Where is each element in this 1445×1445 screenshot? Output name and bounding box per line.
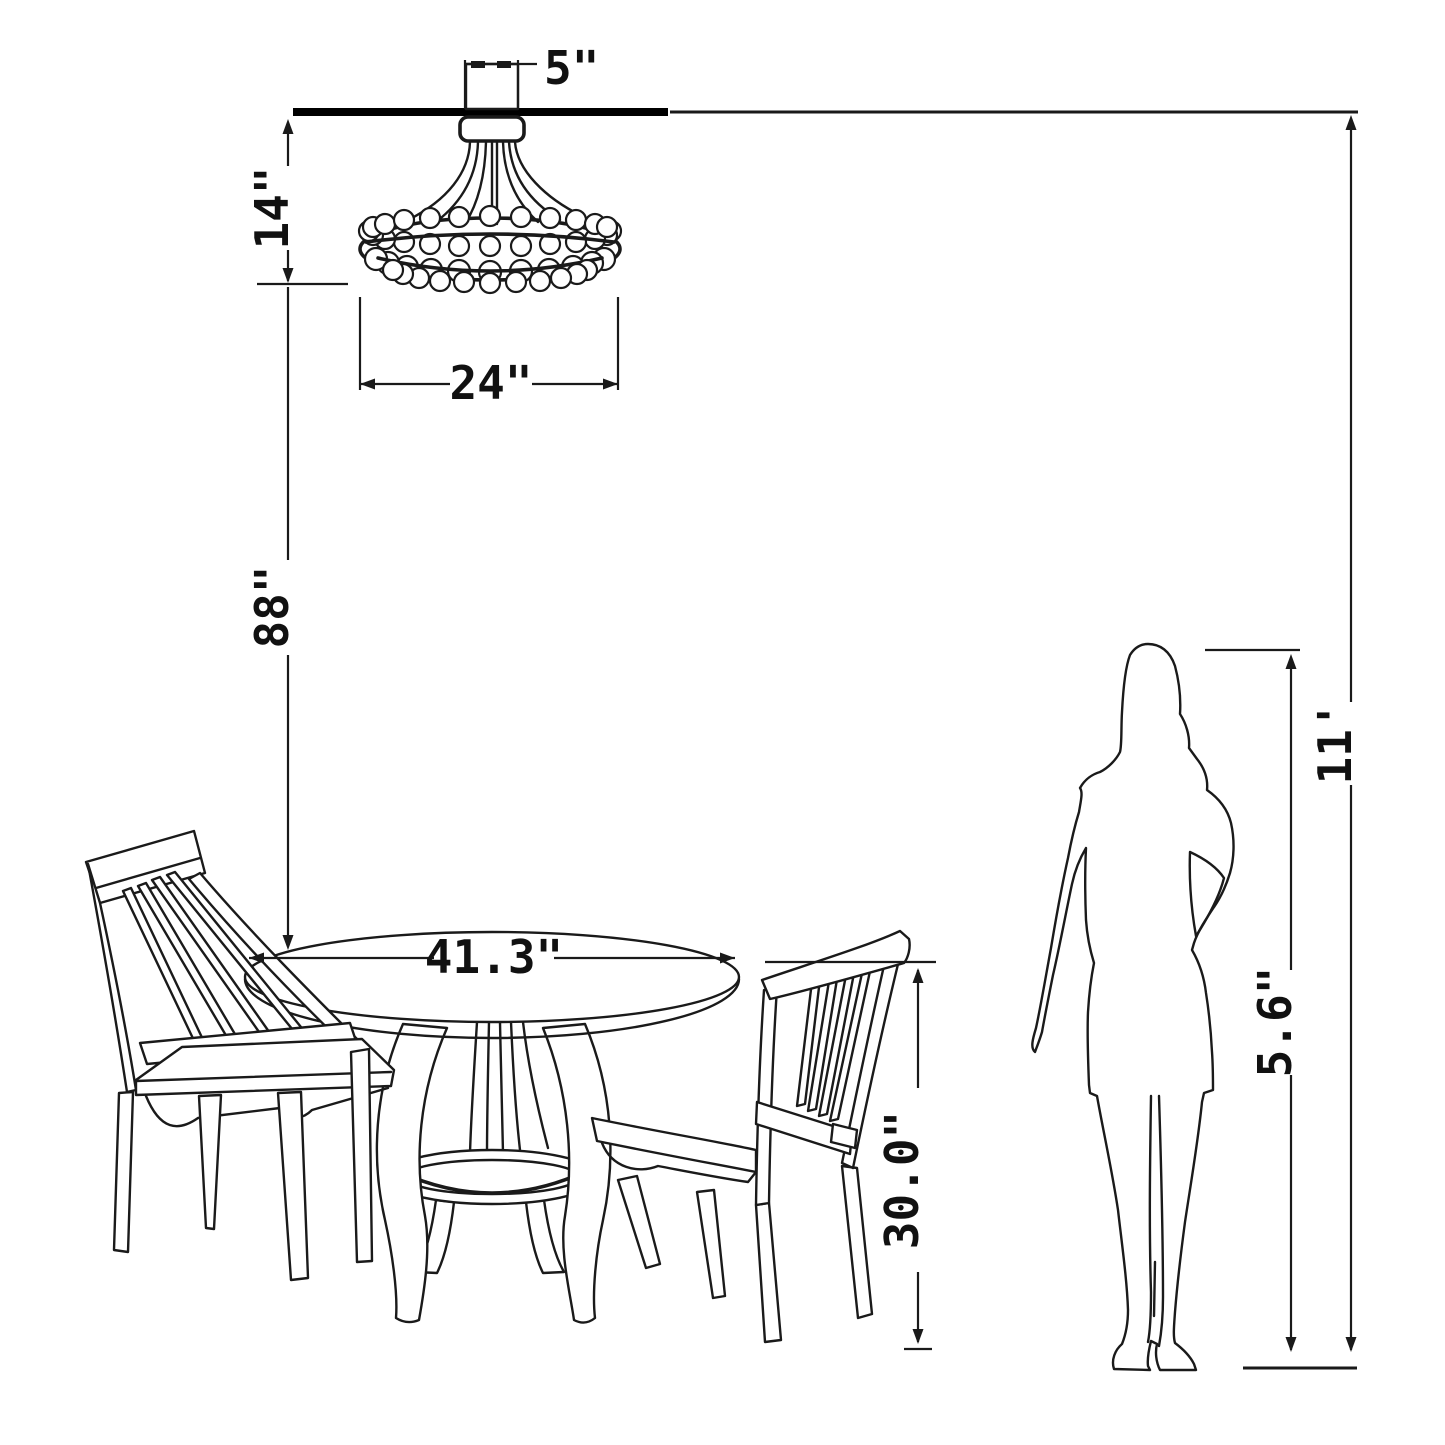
crystal-beads-top-row — [359, 206, 621, 256]
chandelier — [359, 64, 621, 293]
fixture-height-label: 14" — [245, 166, 299, 249]
table-height-label: 30.0" — [875, 1111, 929, 1249]
dim-fixture-diameter: 24" — [360, 297, 618, 410]
chair-left-back-left-leg — [114, 1092, 133, 1252]
person-outline — [1032, 644, 1233, 1370]
bead-ring — [359, 206, 621, 293]
canopy — [460, 117, 524, 141]
pedestal-stem — [470, 1022, 548, 1155]
dim-fixture-height: 14" — [245, 119, 348, 284]
table-back-right-leg — [526, 1200, 564, 1273]
diagram-canvas: 5" 14" 24" 88" 41.3" — [0, 0, 1445, 1445]
dining-table — [245, 932, 739, 1323]
chair-right-front-right-leg — [697, 1190, 725, 1298]
dim-ceiling-height: 11' — [1308, 115, 1362, 1352]
chair-left-front-left-leg — [199, 1095, 221, 1229]
chair-right-back-right-leg — [842, 1166, 872, 1318]
chair-right-left-stile — [756, 988, 777, 1205]
junction-box — [466, 64, 518, 109]
dim-tick-right — [497, 61, 511, 68]
dim-person-height: 5.6" — [1205, 650, 1302, 1352]
hanging-clearance-label: 88" — [245, 565, 299, 648]
dimension-diagram: 5" 14" 24" 88" 41.3" — [0, 0, 1445, 1445]
ceiling — [293, 108, 1358, 116]
person-height-label: 5.6" — [1248, 967, 1302, 1078]
person-inner-leg-lines — [1148, 1096, 1163, 1346]
chair-right-back-left-leg — [756, 1203, 781, 1342]
person-silhouette — [1032, 644, 1233, 1370]
table-diameter-label: 41.3" — [425, 930, 563, 984]
dim-tick-left — [471, 61, 485, 68]
dim-hanging-clearance: 88" — [245, 287, 299, 950]
ceiling-height-label: 11' — [1308, 701, 1362, 784]
fixture-diameter-label: 24" — [449, 356, 532, 410]
canopy-width-label: 5" — [544, 41, 599, 95]
chair-right-front-left-leg — [618, 1176, 660, 1268]
chair-left — [86, 831, 394, 1280]
chair-left-front-right-leg — [278, 1092, 308, 1280]
person-arm-akimbo-gap — [1190, 852, 1224, 936]
dim-canopy-width: 5" — [465, 41, 599, 109]
chair-left-back-right-leg — [351, 1049, 372, 1262]
chair-right-seat — [592, 1118, 756, 1172]
